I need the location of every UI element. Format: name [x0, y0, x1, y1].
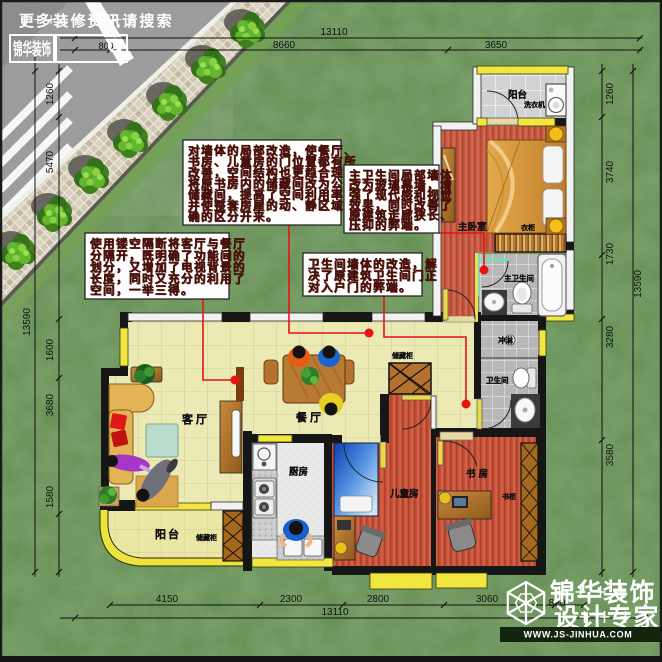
svg-text:空间，一举三得。: 空间，一举三得。 [91, 284, 195, 298]
svg-text:13110: 13110 [321, 607, 349, 618]
svg-text:客厅: 客厅 [181, 412, 210, 426]
svg-text:儿童房: 儿童房 [389, 488, 419, 500]
svg-text:8660: 8660 [273, 40, 296, 51]
svg-text:主卧室: 主卧室 [458, 221, 487, 233]
svg-text:5470: 5470 [45, 150, 56, 173]
svg-text:餐厅: 餐厅 [295, 410, 324, 424]
svg-text:3580: 3580 [605, 443, 616, 466]
svg-text:对入户门的弊端。: 对入户门的弊端。 [309, 281, 413, 295]
svg-text:储藏柜: 储藏柜 [391, 351, 413, 360]
svg-text:3060: 3060 [476, 594, 499, 605]
svg-text:2300: 2300 [280, 594, 303, 605]
svg-text:压抑的弊端。: 压抑的弊端。 [350, 218, 428, 232]
svg-text:1600: 1600 [45, 338, 56, 361]
svg-text:分隔开，既明确了功能间的: 分隔开，既明确了功能间的 [91, 249, 247, 263]
svg-text:主卫生间: 主卫生间 [504, 273, 534, 283]
svg-text:3680: 3680 [45, 393, 56, 416]
svg-text:决了原建筑卫生间门正: 决了原建筑卫生间门正 [309, 269, 439, 283]
svg-text:卫生间墙体的改造，解: 卫生间墙体的改造，解 [309, 257, 439, 271]
svg-text:2800: 2800 [367, 594, 390, 605]
svg-text:阳台: 阳台 [155, 527, 181, 541]
svg-text:书房: 书房 [466, 468, 491, 480]
svg-text:1730: 1730 [605, 242, 616, 265]
svg-text:4150: 4150 [156, 594, 179, 605]
svg-text:1580: 1580 [45, 485, 56, 508]
svg-text:3280: 3280 [605, 325, 616, 348]
svg-text:更多装修资讯请搜索: 更多装修资讯请搜索 [19, 12, 174, 30]
svg-text:储藏柜: 储藏柜 [195, 533, 217, 542]
svg-text:3740: 3740 [605, 160, 616, 183]
svg-text:1260: 1260 [605, 82, 616, 105]
svg-text:3650: 3650 [485, 40, 508, 51]
svg-text:锦华装饰: 锦华装饰 [13, 39, 51, 59]
svg-text:使用镂空隔断将客厅与餐厅: 使用镂空隔断将客厅与餐厅 [90, 237, 247, 251]
svg-text:13590: 13590 [22, 308, 33, 336]
svg-text:1260: 1260 [45, 82, 56, 105]
svg-text:卫生间: 卫生间 [486, 375, 509, 385]
svg-text:厨房: 厨房 [289, 466, 308, 478]
svg-text:衣柜: 衣柜 [521, 223, 535, 232]
svg-text:确的区分开来。: 确的区分开来。 [189, 210, 280, 224]
svg-text:阳台: 阳台 [508, 89, 528, 101]
svg-text:WWW.JS-JINHUA.COM: WWW.JS-JINHUA.COM [524, 630, 633, 640]
svg-text:13110: 13110 [320, 27, 348, 38]
svg-text:书柜: 书柜 [502, 492, 516, 501]
svg-text:13590: 13590 [633, 270, 644, 298]
svg-text:冲淋: 冲淋 [498, 335, 513, 345]
svg-text:划分，又增加了电视背景的: 划分，又增加了电视背景的 [91, 260, 247, 274]
svg-text:长度，同时又充分的利用了: 长度，同时又充分的利用了 [91, 272, 247, 286]
svg-text:洗衣机: 洗衣机 [524, 100, 545, 109]
